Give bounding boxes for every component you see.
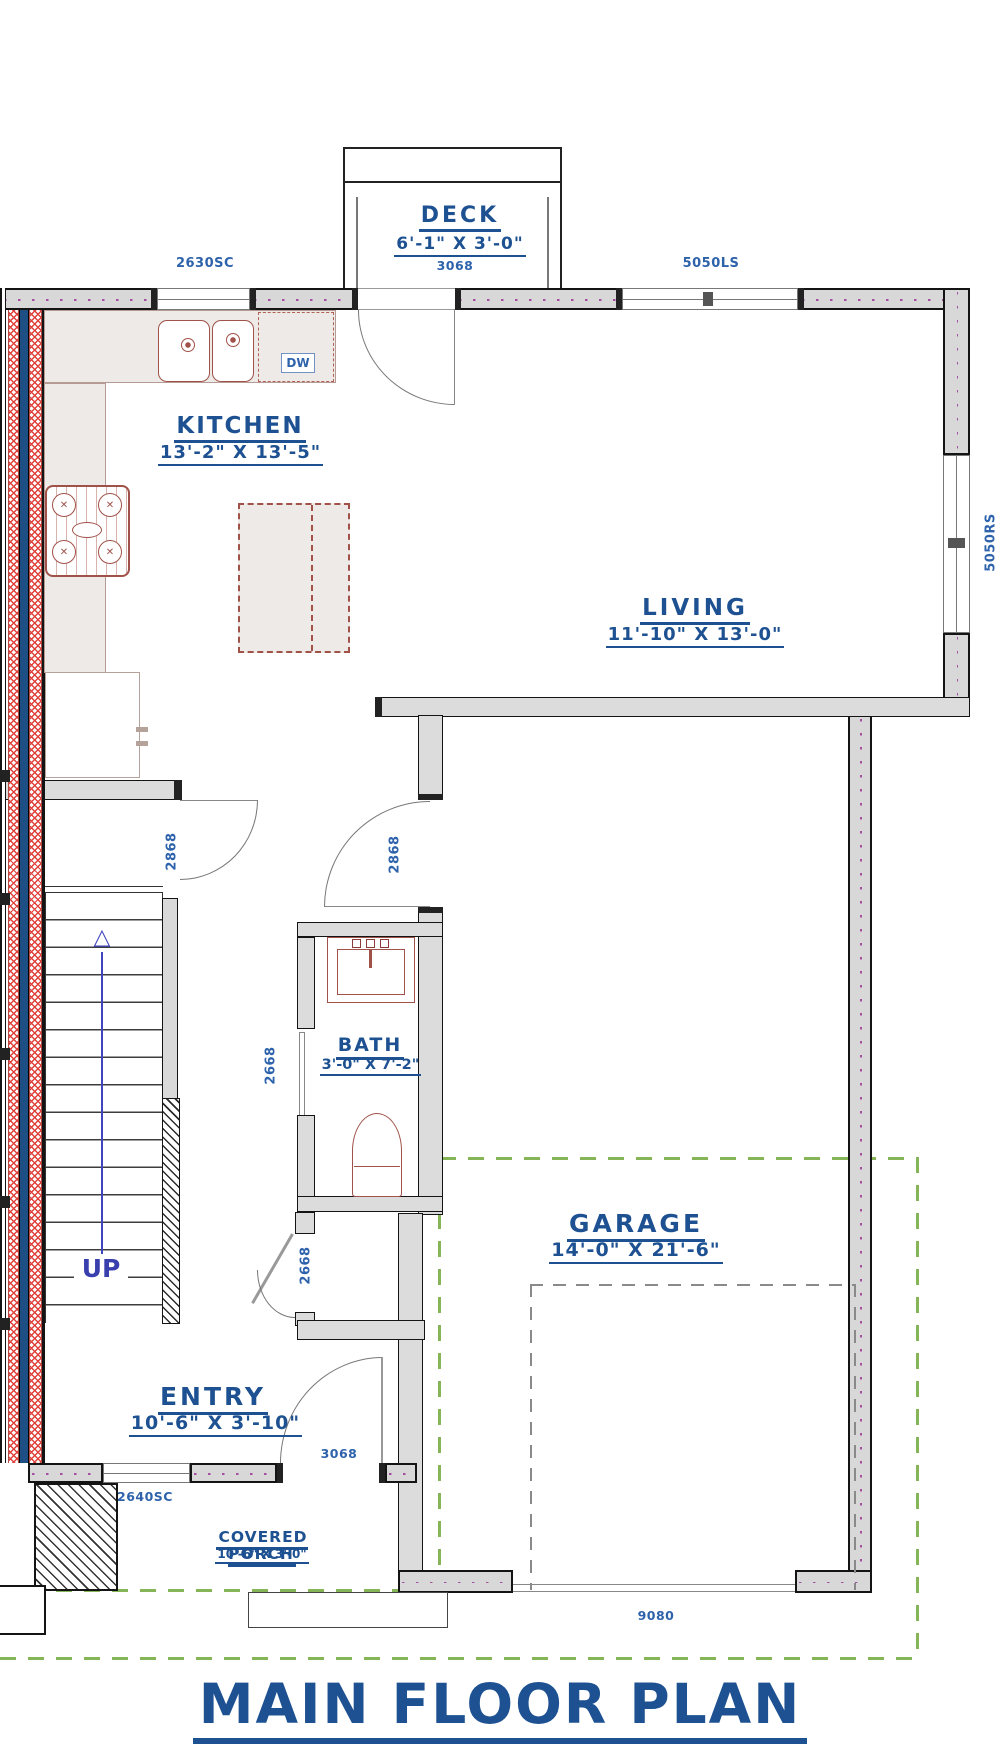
kitchen-island: [238, 503, 350, 653]
page-title-text: MAIN FLOOR PLAN: [193, 1672, 808, 1744]
party-wall-neighbor-line: [0, 288, 6, 1463]
jamb: [0, 770, 10, 782]
garage-label: GARAGE: [556, 1210, 716, 1238]
wall-front-2: [190, 1463, 277, 1483]
wall-garage-right: [848, 715, 872, 1593]
jamb: [0, 1196, 10, 1208]
bath-faucet-handle: [380, 939, 389, 948]
door-closet-label: 2668: [299, 1231, 314, 1301]
parking-stall-right: [854, 1284, 856, 1590]
sink-bowl-right: [212, 320, 254, 382]
wall-bath-bottom: [297, 1196, 443, 1212]
sink-drain-left: [181, 338, 195, 352]
porch-dims: 10'-6" X 3'-0": [212, 1548, 312, 1561]
page-title: MAIN FLOOR PLAN: [100, 1672, 900, 1736]
entry-door-label: 3068: [309, 1446, 369, 1461]
jamb: [174, 780, 182, 800]
jamb: [250, 288, 256, 310]
entry-dims: 10'-6" X 3'-10": [128, 1413, 303, 1434]
window-living-top-label-text: 5050LS: [683, 256, 740, 271]
bath-faucet-stem: [369, 950, 372, 968]
wall-top-2: [250, 288, 358, 310]
wall-garage-left-upper-a: [418, 715, 443, 800]
jamb: [418, 907, 443, 913]
jamb: [0, 1048, 10, 1060]
living-dims-text: 11'-10" X 13'-0": [606, 624, 785, 648]
wall-garage-bottom-right: [795, 1570, 872, 1593]
jamb: [455, 288, 461, 310]
stove-burner: ✕: [52, 493, 76, 517]
overhang-outline-top: [440, 1157, 918, 1160]
door-hall-living-label-text: 2868: [388, 835, 403, 873]
parking-stall-top: [530, 1284, 856, 1286]
door-closet-label-text: 2668: [299, 1246, 314, 1284]
window-kitchen: [157, 288, 250, 310]
party-wall-blue-core: [19, 310, 29, 1463]
wall-top-3: [455, 288, 622, 310]
garage-door: [513, 1584, 795, 1592]
window-kitchen-label-text: 2630SC: [176, 256, 234, 271]
kitchen-label: KITCHEN: [150, 414, 330, 439]
stove-burner: ✕: [98, 493, 122, 517]
window-living-right-mullion: [948, 538, 965, 548]
wall-bath-left-upper: [297, 937, 315, 1029]
up-label-text: UP: [82, 1254, 121, 1283]
door-bath-label-text: 2668: [264, 1046, 279, 1084]
kitchen-island-divider: [311, 505, 313, 651]
wall-garage-left-lower: [398, 1213, 423, 1573]
kitchen-label-text: KITCHEN: [174, 413, 305, 443]
bath-faucet-spout: [366, 939, 375, 948]
overhang-outline-right: [916, 1157, 919, 1660]
stairs-lower-wall-hatch: [162, 1098, 180, 1324]
toilet: [352, 1113, 402, 1197]
entry-door-opening: [277, 1463, 385, 1483]
party-wall-hatch-2: [29, 310, 42, 1463]
entry-label-text: ENTRY: [158, 1382, 268, 1415]
stairs-landing-edge: [45, 886, 163, 893]
stairs-direction-arrow-line: [101, 952, 103, 1272]
stove-burner: ✕: [98, 540, 122, 564]
stairs-half-wall: [162, 898, 178, 1100]
garage-dims-text: 14'-0" X 21'-6": [549, 1239, 722, 1264]
bath-dims-text: 3'-0" X 7'-2": [320, 1057, 422, 1076]
window-living-right-label: 5050RS: [984, 508, 999, 578]
stairs-up-label: UP: [74, 1254, 128, 1284]
stove-burner: ✕: [52, 540, 76, 564]
window-living-right-label-text: 5050RS: [984, 513, 999, 572]
garage-label-text: GARAGE: [567, 1209, 705, 1242]
wall-living-garage: [375, 697, 970, 717]
jamb: [379, 1463, 385, 1483]
porch-dims-text: 10'-6" X 3'-0": [215, 1547, 308, 1564]
main-floor-plan: DW ✕ ✕ ✕ ✕ △ UP DECK 6'-1" X 3'-0" 3068 …: [0, 0, 1000, 1748]
deck-edge-band: [343, 147, 562, 183]
refrigerator: [45, 672, 140, 778]
entry-door-label-text: 3068: [321, 1446, 358, 1461]
dishwasher-label-text: DW: [286, 356, 309, 370]
neighbor-porch-stub: [0, 1585, 46, 1635]
window-living-top-label: 5050LS: [666, 256, 756, 271]
deck-door-label-text: 3068: [437, 258, 474, 273]
jamb: [798, 288, 804, 310]
overhang-outline-bottom: [0, 1657, 919, 1660]
entry-label: ENTRY: [133, 1383, 293, 1411]
bath-door-panel: [299, 1032, 305, 1116]
bath-label: BATH: [330, 1035, 410, 1056]
overhang-outline-left: [438, 1157, 441, 1593]
deck-door-swing: [358, 310, 455, 405]
wall-bath-left-lower: [297, 1115, 315, 1199]
jamb: [375, 697, 382, 717]
living-label-text: LIVING: [640, 595, 750, 625]
deck-label-text: DECK: [419, 203, 501, 232]
window-living-top-mullion: [703, 292, 713, 306]
window-entry: [103, 1463, 190, 1483]
living-dims: 11'-10" X 13'-0": [600, 625, 790, 645]
door-hall-living-label: 2868: [388, 820, 403, 890]
wall-right-1: [943, 288, 970, 455]
entry-dims-text: 10'-6" X 3'-10": [129, 1412, 302, 1437]
window-kitchen-label: 2630SC: [160, 256, 250, 271]
jamb: [0, 893, 10, 905]
kitchen-hall-door-opening: [182, 780, 258, 800]
wall-front-1: [28, 1463, 103, 1483]
kitchen-dims: 13'-2" X 13'-5": [148, 443, 333, 463]
bath-dims: 3'-0" X 7'-2": [318, 1058, 423, 1074]
garage-dims: 14'-0" X 21'-6": [546, 1240, 726, 1261]
dishwasher-label: DW: [281, 353, 315, 373]
wall-entry-closet: [297, 1320, 425, 1340]
stairs-arrow-head: △: [89, 926, 115, 950]
wall-garage-bottom-left: [398, 1570, 513, 1593]
sink-drain-right: [226, 333, 240, 347]
door-hall-kitchen-label: 2868: [165, 817, 180, 887]
jamb: [0, 1318, 10, 1330]
jamb: [418, 794, 443, 800]
refrigerator-handle: [136, 741, 148, 746]
kitchen-hall-door-swing: [180, 800, 258, 880]
window-entry-label-text: 2640SC: [117, 1489, 173, 1504]
deck-door-opening: [358, 288, 455, 310]
deck-dims-text: 6'-1" X 3'-0": [394, 234, 526, 257]
door-hall-kitchen-label-text: 2868: [165, 832, 180, 870]
wall-front-3: [385, 1463, 417, 1483]
deck-dims: 6'-1" X 3'-0": [385, 235, 535, 254]
bath-faucet-handle: [352, 939, 361, 948]
deck-label: DECK: [385, 204, 535, 228]
deck-door-label: 3068: [425, 258, 485, 273]
door-bath-label: 2668: [264, 1031, 279, 1101]
garage-door-label-text: 9080: [638, 1608, 675, 1623]
closet-door-swing: [257, 1270, 295, 1318]
refrigerator-handle: [136, 727, 148, 732]
porch-step: [248, 1592, 448, 1628]
jamb: [277, 1463, 283, 1483]
stove-center-oval: [72, 522, 102, 538]
hall-living-door-swing: [324, 801, 430, 907]
wall-top-1: [0, 288, 157, 310]
kitchen-dims-text: 13'-2" X 13'-5": [158, 442, 323, 466]
jamb: [616, 288, 622, 310]
jamb: [352, 288, 358, 310]
window-entry-label: 2640SC: [100, 1489, 190, 1504]
garage-door-label: 9080: [626, 1608, 686, 1623]
wall-bath-top: [297, 922, 443, 937]
jamb: [151, 288, 157, 310]
toilet-seat-line: [354, 1166, 400, 1167]
parking-stall-left: [530, 1284, 532, 1590]
living-label: LIVING: [620, 596, 770, 621]
party-wall-hatch-1: [8, 310, 19, 1463]
